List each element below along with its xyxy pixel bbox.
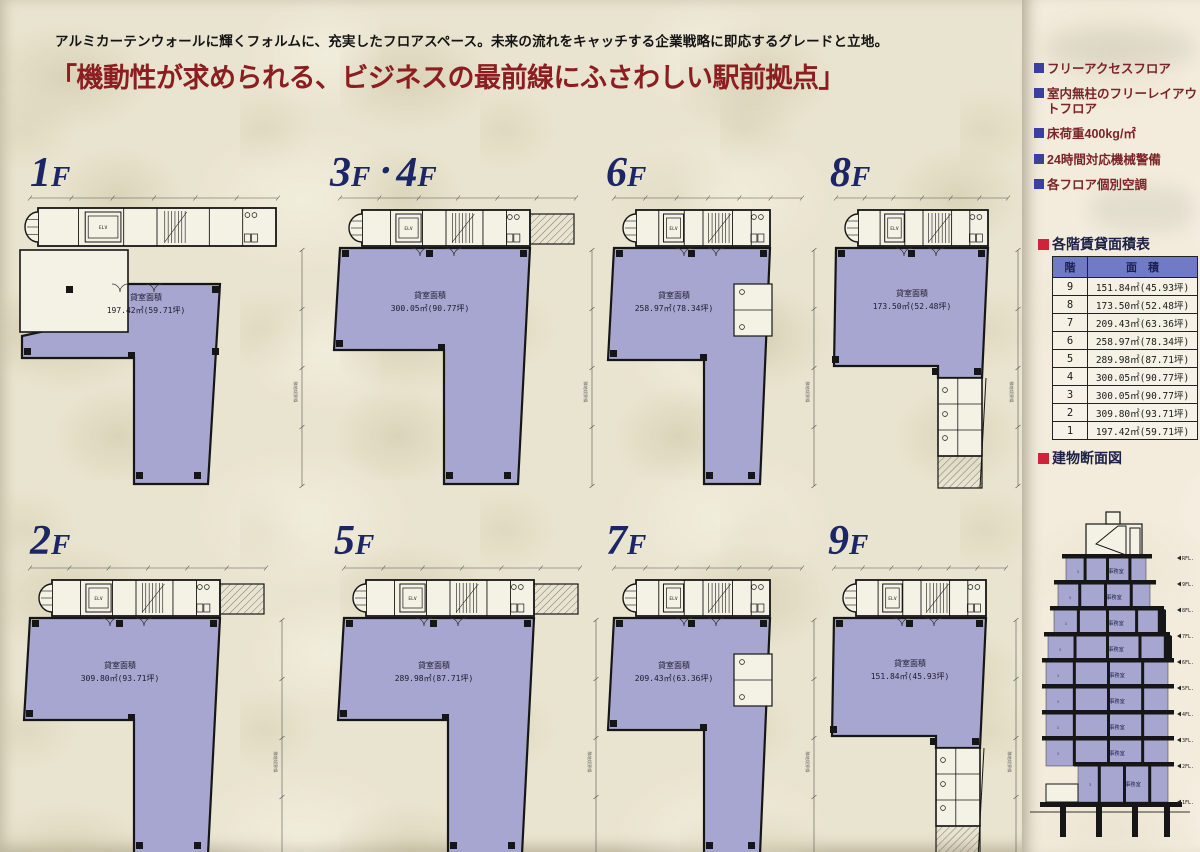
rental-area-value: 289.98㎡(87.71坪) (395, 674, 474, 683)
floor-plan-8F: ELV 貸室面積173.50㎡(52.48坪)隣地境界線 (824, 188, 1024, 505)
red-square-bullet-icon (1038, 239, 1049, 250)
boundary-line-label: 隣地境界線 (586, 751, 593, 773)
floor-plan-drawing: ELV 貸室面積258.97㎡(78.34坪)隣地境界線 (602, 188, 820, 500)
area-cell: 173.50㎡(52.48坪) (1088, 296, 1198, 314)
feature-text: 24時間対応機械警備 (1047, 153, 1161, 167)
intro-text: アルミカーテンウォールに輝くフォルムに、充実したフロアスペース。未来の流れをキャ… (55, 30, 1005, 50)
elevator-label: ELV (94, 596, 103, 602)
feature-item: フリーアクセスフロア (1034, 62, 1200, 76)
boundary-line-label: 隣地境界線 (1006, 751, 1013, 773)
floor-plan-3F・4F: ELV 貸室面積300.05㎡(90.77坪)隣地境界線 (326, 188, 598, 505)
floor-plan-drawing: ELV 貸室面積209.43㎡(63.36坪)隣地境界線 (602, 558, 820, 852)
floor-cell: 4 (1053, 368, 1088, 386)
section-room-label: 事務室 (1109, 723, 1125, 731)
floor-cell: 5 (1053, 350, 1088, 368)
rental-area-value: 173.50㎡(52.48坪) (873, 302, 952, 311)
section-level-label: 2FL. (1182, 764, 1194, 770)
svg-text:3: 3 (1069, 596, 1071, 600)
svg-text:3: 3 (1057, 752, 1059, 756)
area-cell: 197.42㎡(59.71坪) (1088, 422, 1198, 440)
rental-area-label: 貸室面積 (658, 290, 690, 300)
section-room-label: 事務室 (1108, 567, 1124, 575)
floor-plan-6F: ELV 貸室面積258.97㎡(78.34坪)隣地境界線 (602, 188, 820, 505)
floor-plan-9F: ELV 貸室面積151.84㎡(45.93坪)隣地境界線 (822, 558, 1022, 852)
rent-area-table: 階 面 積 9 151.84㎡(45.93坪) 8 173.50㎡(52.48坪… (1052, 256, 1198, 440)
floor-plan-title-2F: 2F (30, 520, 70, 562)
table-row: 5 289.98㎡(87.71坪) (1053, 350, 1198, 368)
floor-cell: 3 (1053, 386, 1088, 404)
rental-area-value: 258.97㎡(78.34坪) (635, 304, 714, 313)
feature-text: フリーアクセスフロア (1047, 62, 1171, 76)
svg-text:3: 3 (1057, 674, 1059, 678)
section-room-label: 事務室 (1108, 645, 1124, 653)
rental-area-shape (832, 618, 986, 748)
section-level-label: 1FL. (1182, 800, 1194, 806)
boundary-line-label: 隣地境界線 (582, 381, 589, 403)
elevator-label: ELV (888, 596, 897, 602)
elevator-label: ELV (404, 226, 413, 232)
area-cell: 300.05㎡(90.77坪) (1088, 368, 1198, 386)
section-level-label: 5FL. (1182, 686, 1194, 692)
boundary-line-label: 隣地境界線 (804, 751, 811, 773)
section-room-label: 事務室 (1109, 671, 1125, 679)
rental-area-value: 151.84㎡(45.93坪) (871, 672, 950, 681)
rental-area-shape (608, 618, 770, 852)
boundary-line-label: 隣地境界線 (292, 381, 299, 403)
elevator-label: ELV (669, 226, 678, 232)
area-cell: 209.43㎡(63.36坪) (1088, 314, 1198, 332)
section-level-label: 8FL. (1182, 608, 1194, 614)
rental-area-value: 300.05㎡(90.77坪) (391, 304, 470, 313)
feature-item: 室内無柱のフリーレイアウトフロア (1034, 87, 1200, 116)
table-row: 8 173.50㎡(52.48坪) (1053, 296, 1198, 314)
svg-text:3: 3 (1077, 570, 1079, 574)
floor-plan-drawing: ELV 貸室面積173.50㎡(52.48坪)隣地境界線 (824, 188, 1024, 500)
elevator-label: ELV (890, 226, 899, 232)
floor-cell: 8 (1053, 296, 1088, 314)
building-cross-section: 事務室3事務室3事務室3事務室3事務室3事務室3事務室3事務室3事務室3 RFL… (1030, 466, 1200, 844)
rental-area-shape (334, 248, 530, 484)
red-square-bullet-icon (1038, 453, 1049, 464)
section-room-label: 事務室 (1125, 780, 1141, 788)
blue-square-bullet-icon (1034, 179, 1044, 189)
table-row: 2 309.80㎡(93.71坪) (1053, 404, 1198, 422)
svg-text:3: 3 (1057, 726, 1059, 730)
blue-square-bullet-icon (1034, 88, 1044, 98)
floor-cell: 1 (1053, 422, 1088, 440)
rental-area-label: 貸室面積 (130, 292, 162, 302)
svg-text:3: 3 (1057, 700, 1059, 704)
section-level-label: 4FL. (1182, 712, 1194, 718)
rental-area-shape (834, 248, 988, 378)
feature-text: 室内無柱のフリーレイアウトフロア (1047, 87, 1200, 116)
rental-area-label: 貸室面積 (414, 290, 446, 300)
floor-plan-title-5F: 5F (334, 520, 374, 562)
rental-area-label: 貸室面積 (896, 288, 928, 298)
section-level-label: RFL. (1182, 556, 1194, 562)
floor-plan-5F: ELV 貸室面積289.98㎡(87.71坪)隣地境界線 (330, 558, 602, 852)
table-row: 3 300.05㎡(90.77坪) (1053, 386, 1198, 404)
section-room-label: 事務室 (1108, 619, 1124, 627)
boundary-line-label: 隣地境界線 (272, 751, 279, 773)
elevator-label: ELV (99, 225, 108, 231)
section-level-label: 6FL. (1182, 660, 1194, 666)
rental-area-value: 209.43㎡(63.36坪) (635, 674, 714, 683)
rental-area-label: 貸室面積 (894, 658, 926, 668)
rental-area-label: 貸室面積 (418, 660, 450, 670)
feature-item: 各フロア個別空調 (1034, 178, 1200, 192)
boundary-line-label: 隣地境界線 (804, 381, 811, 403)
feature-item: 床荷重400kg/㎡ (1034, 127, 1200, 141)
blue-square-bullet-icon (1034, 154, 1044, 164)
feature-list: フリーアクセスフロア室内無柱のフリーレイアウトフロア床荷重400kg/㎡24時間… (1034, 62, 1200, 203)
table-row: 1 197.42㎡(59.71坪) (1053, 422, 1198, 440)
boundary-line-label: 隣地境界線 (1008, 381, 1015, 403)
section-room-label: 事務室 (1109, 697, 1125, 705)
floor-cell: 6 (1053, 332, 1088, 350)
rental-area-shape (24, 618, 220, 852)
floor-plan-2F: ELV 貸室面積309.80㎡(93.71坪)隣地境界線 (16, 558, 288, 852)
table-header-row: 階 面 積 (1053, 257, 1198, 278)
rental-area-value: 309.80㎡(93.71坪) (81, 674, 160, 683)
table-row: 6 258.97㎡(78.34坪) (1053, 332, 1198, 350)
table-row: 9 151.84㎡(45.93坪) (1053, 278, 1198, 296)
blue-square-bullet-icon (1034, 63, 1044, 73)
rental-area-value: 197.42㎡(59.71坪) (107, 306, 186, 315)
col-floor: 階 (1053, 257, 1088, 278)
floor-plan-drawing: ELV 貸室面積197.42㎡(59.71坪)隣地境界線 (16, 188, 308, 500)
rental-area-shape (608, 248, 770, 484)
area-cell: 258.97㎡(78.34坪) (1088, 332, 1198, 350)
floor-plan-title-9F: 9F (828, 520, 868, 562)
svg-text:3: 3 (1065, 622, 1067, 626)
area-cell: 151.84㎡(45.93坪) (1088, 278, 1198, 296)
section-level-label: 9FL. (1182, 582, 1194, 588)
section-view-title: 建物断面図 (1038, 448, 1122, 468)
feature-item: 24時間対応機械警備 (1034, 153, 1200, 167)
floor-plan-1F: ELV 貸室面積197.42㎡(59.71坪)隣地境界線 (16, 188, 308, 505)
floor-plan-drawing: ELV 貸室面積289.98㎡(87.71坪)隣地境界線 (330, 558, 602, 852)
table-row: 4 300.05㎡(90.77坪) (1053, 368, 1198, 386)
floor-plan-drawing: ELV 貸室面積300.05㎡(90.77坪)隣地境界線 (326, 188, 598, 500)
cross-section-drawing: 事務室3事務室3事務室3事務室3事務室3事務室3事務室3事務室3事務室3 RFL… (1030, 466, 1200, 844)
page-headline: 「機動性が求められる、ビジネスの最前線にふさわしい駅前拠点」 (50, 56, 1030, 95)
area-table-title: 各階賃貸面積表 (1038, 234, 1150, 254)
rental-area-label: 貸室面積 (104, 660, 136, 670)
floor-cell: 7 (1053, 314, 1088, 332)
elevator-label: ELV (669, 596, 678, 602)
section-room-label: 事務室 (1106, 593, 1122, 601)
floor-plan-drawing: ELV 貸室面積309.80㎡(93.71坪)隣地境界線 (16, 558, 288, 852)
blue-square-bullet-icon (1034, 128, 1044, 138)
rental-area-label: 貸室面積 (658, 660, 690, 670)
section-level-label: 3FL. (1182, 738, 1194, 744)
rental-area-shape (338, 618, 534, 852)
svg-text:3: 3 (1059, 648, 1061, 652)
floor-plan-drawing: ELV 貸室面積151.84㎡(45.93坪)隣地境界線 (822, 558, 1022, 852)
feature-text: 各フロア個別空調 (1047, 178, 1147, 192)
floor-plan-title-7F: 7F (606, 520, 646, 562)
feature-text: 床荷重400kg/㎡ (1047, 127, 1136, 141)
svg-text:3: 3 (1089, 783, 1091, 787)
elevator-label: ELV (408, 596, 417, 602)
area-cell: 300.05㎡(90.77坪) (1088, 386, 1198, 404)
floor-cell: 2 (1053, 404, 1088, 422)
floor-cell: 9 (1053, 278, 1088, 296)
brochure-page: アルミカーテンウォールに輝くフォルムに、充実したフロアスペース。未来の流れをキャ… (0, 0, 1200, 852)
table-row: 7 209.43㎡(63.36坪) (1053, 314, 1198, 332)
area-cell: 309.80㎡(93.71坪) (1088, 404, 1198, 422)
floor-plan-7F: ELV 貸室面積209.43㎡(63.36坪)隣地境界線 (602, 558, 820, 852)
col-area: 面 積 (1088, 257, 1198, 278)
section-level-label: 7FL. (1182, 634, 1194, 640)
section-room-label: 事務室 (1109, 749, 1125, 757)
area-cell: 289.98㎡(87.71坪) (1088, 350, 1198, 368)
